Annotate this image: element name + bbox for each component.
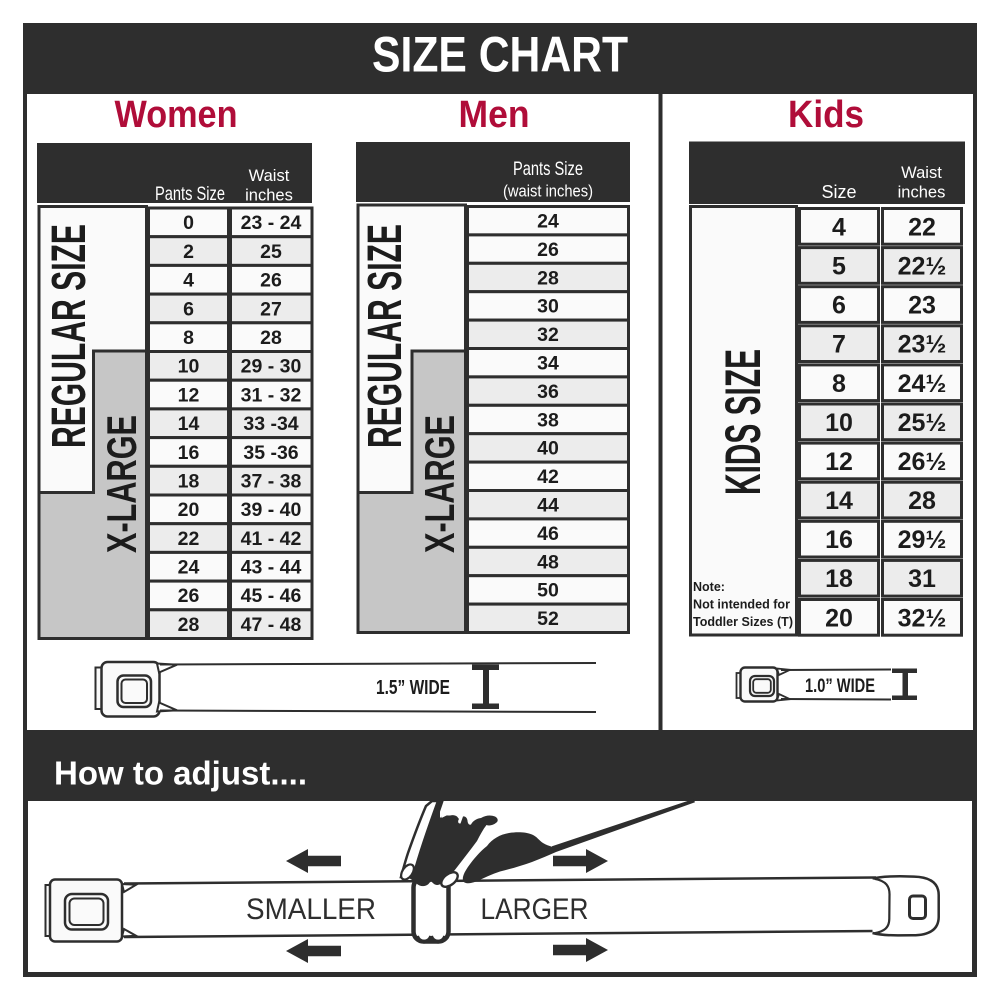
- svg-text:Pants Size: Pants Size: [155, 183, 225, 205]
- svg-text:27: 27: [260, 298, 282, 320]
- svg-text:37 - 38: 37 - 38: [241, 471, 302, 493]
- svg-text:1.0” WIDE: 1.0” WIDE: [805, 676, 875, 697]
- svg-text:16: 16: [178, 442, 200, 464]
- svg-text:25½: 25½: [898, 409, 947, 437]
- svg-text:31: 31: [908, 565, 936, 593]
- svg-text:X-LARGE: X-LARGE: [416, 415, 463, 553]
- svg-text:33 -34: 33 -34: [243, 413, 298, 435]
- svg-text:50: 50: [537, 580, 559, 602]
- svg-text:23 - 24: 23 - 24: [241, 212, 302, 234]
- svg-text:SIZE CHART: SIZE CHART: [372, 27, 628, 83]
- svg-text:44: 44: [537, 495, 559, 517]
- svg-text:(waist inches): (waist inches): [503, 182, 593, 201]
- svg-text:26½: 26½: [898, 448, 947, 476]
- svg-text:KIDS SIZE: KIDS SIZE: [715, 349, 771, 495]
- svg-text:38: 38: [537, 409, 559, 431]
- svg-text:43 - 44: 43 - 44: [241, 557, 302, 579]
- svg-text:35 -36: 35 -36: [243, 442, 298, 464]
- svg-text:28: 28: [178, 614, 200, 636]
- svg-text:23: 23: [908, 292, 936, 320]
- svg-text:42: 42: [537, 466, 559, 488]
- svg-text:20: 20: [178, 499, 200, 521]
- svg-text:8: 8: [832, 370, 846, 398]
- svg-text:26: 26: [537, 239, 559, 261]
- svg-text:0: 0: [183, 212, 194, 234]
- svg-text:Note:: Note:: [693, 580, 725, 594]
- svg-text:32: 32: [537, 324, 559, 346]
- svg-text:46: 46: [537, 523, 559, 545]
- svg-text:24: 24: [178, 557, 200, 579]
- svg-text:29½: 29½: [898, 526, 947, 554]
- svg-text:28: 28: [537, 267, 559, 289]
- svg-text:26: 26: [260, 270, 282, 292]
- svg-text:REGULAR SIZE: REGULAR SIZE: [43, 224, 96, 448]
- svg-text:inches: inches: [245, 187, 293, 205]
- svg-text:LARGER: LARGER: [481, 893, 589, 926]
- svg-text:24: 24: [537, 211, 559, 233]
- svg-text:8: 8: [183, 327, 194, 349]
- svg-text:12: 12: [178, 384, 200, 406]
- svg-text:47 - 48: 47 - 48: [241, 614, 302, 636]
- svg-text:How to adjust....: How to adjust....: [54, 755, 307, 792]
- svg-text:4: 4: [183, 270, 194, 292]
- svg-text:48: 48: [537, 551, 559, 573]
- svg-text:7: 7: [832, 331, 846, 359]
- svg-text:Waist: Waist: [901, 164, 942, 182]
- svg-text:39 - 40: 39 - 40: [241, 499, 302, 521]
- svg-text:22: 22: [908, 213, 936, 241]
- svg-text:Kids: Kids: [788, 94, 864, 136]
- svg-text:14: 14: [825, 487, 853, 515]
- svg-text:10: 10: [825, 409, 853, 437]
- svg-text:Waist: Waist: [249, 167, 290, 185]
- svg-text:34: 34: [537, 353, 559, 375]
- svg-text:41 - 42: 41 - 42: [241, 528, 302, 550]
- svg-text:Not intended for: Not intended for: [693, 598, 790, 612]
- svg-text:26: 26: [178, 585, 200, 607]
- svg-text:45 - 46: 45 - 46: [241, 585, 302, 607]
- svg-text:20: 20: [825, 604, 853, 632]
- svg-text:6: 6: [832, 292, 846, 320]
- svg-text:inches: inches: [898, 184, 946, 202]
- svg-text:12: 12: [825, 448, 853, 476]
- svg-text:18: 18: [825, 565, 853, 593]
- svg-text:2: 2: [183, 241, 194, 263]
- svg-text:Pants Size: Pants Size: [513, 158, 583, 180]
- svg-text:5: 5: [832, 252, 846, 280]
- svg-text:Toddler Sizes (T): Toddler Sizes (T): [693, 615, 793, 629]
- svg-text:14: 14: [178, 413, 200, 435]
- svg-text:X-LARGE: X-LARGE: [98, 415, 145, 553]
- svg-text:52: 52: [537, 608, 559, 630]
- svg-text:30: 30: [537, 296, 559, 318]
- svg-text:28: 28: [908, 487, 936, 515]
- svg-text:29 - 30: 29 - 30: [241, 356, 302, 378]
- svg-text:32½: 32½: [898, 604, 947, 632]
- svg-text:4: 4: [832, 213, 846, 241]
- svg-text:10: 10: [178, 356, 200, 378]
- svg-text:Size: Size: [821, 182, 856, 202]
- svg-text:40: 40: [537, 438, 559, 460]
- svg-text:18: 18: [178, 471, 200, 493]
- svg-text:SMALLER: SMALLER: [246, 893, 376, 926]
- svg-text:23½: 23½: [898, 331, 947, 359]
- svg-text:Women: Women: [115, 94, 238, 136]
- svg-text:1.5” WIDE: 1.5” WIDE: [376, 677, 450, 699]
- svg-text:36: 36: [537, 381, 559, 403]
- svg-text:31 - 32: 31 - 32: [241, 384, 302, 406]
- svg-text:28: 28: [260, 327, 282, 349]
- svg-text:6: 6: [183, 298, 194, 320]
- svg-text:22: 22: [178, 528, 200, 550]
- svg-text:REGULAR SIZE: REGULAR SIZE: [359, 224, 412, 448]
- svg-text:25: 25: [260, 241, 282, 263]
- svg-text:16: 16: [825, 526, 853, 554]
- svg-text:22½: 22½: [898, 252, 947, 280]
- svg-text:24½: 24½: [898, 370, 947, 398]
- svg-text:Men: Men: [459, 94, 530, 136]
